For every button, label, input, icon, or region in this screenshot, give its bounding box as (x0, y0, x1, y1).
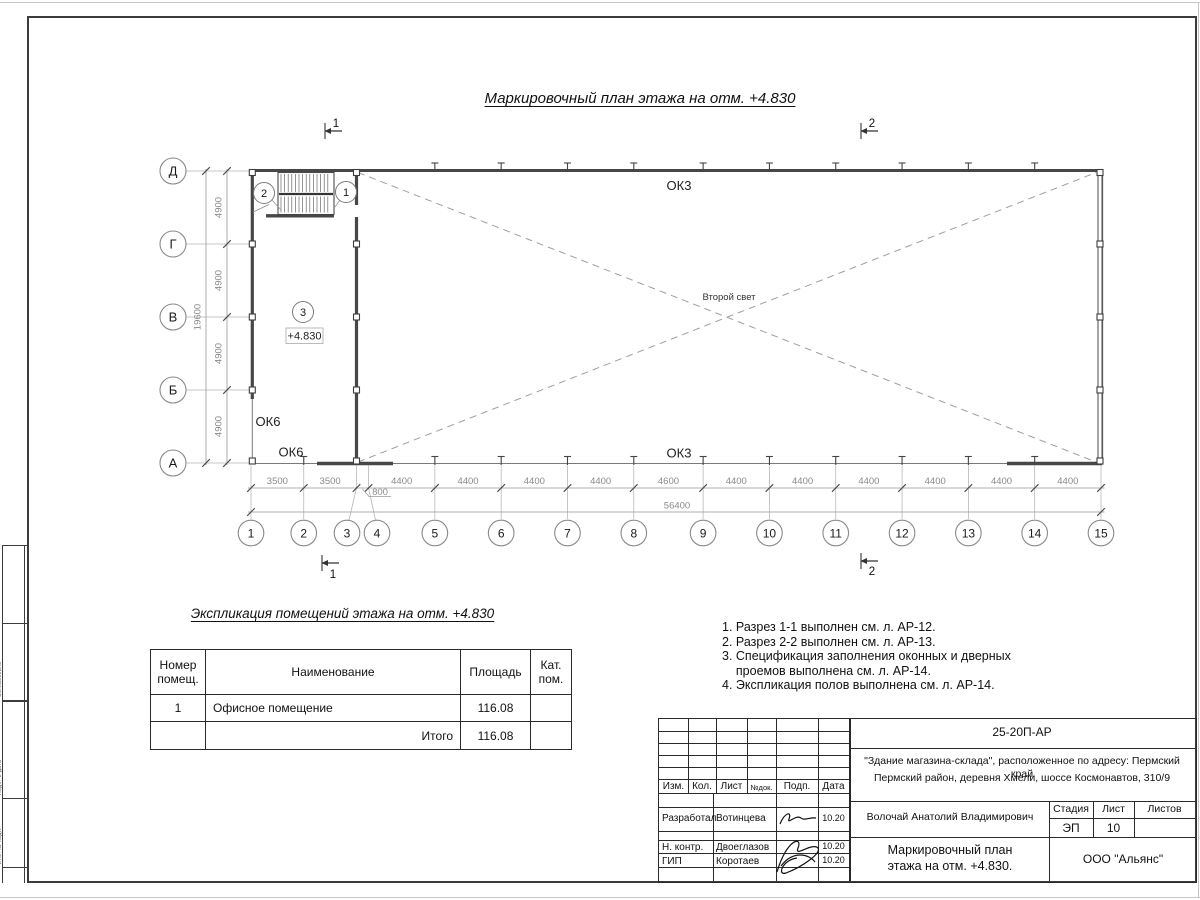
axis-column-label: 13 (962, 526, 976, 540)
dim-label: 4400 (858, 476, 879, 487)
axis-row-label: Д (169, 164, 178, 179)
drawing-title-line1: Маркировочный план (851, 843, 1049, 859)
tb-line (659, 755, 849, 756)
explication-header-row: Номер помещ. Наименование Площадь Кат. п… (151, 650, 572, 695)
axis-column-label: 1 (248, 526, 255, 540)
stamp-side-label: Инв. № подл. (0, 827, 3, 864)
dim-label: 4400 (726, 476, 747, 487)
window-label-ok6-bottom: ОК6 (279, 445, 304, 460)
tb-line (659, 743, 849, 744)
stair-tag: 1 (343, 187, 349, 199)
axis-column-label: 6 (498, 526, 505, 540)
sheet-label: Лист (1093, 803, 1134, 816)
doc-code: 25-20П-АР (849, 725, 1195, 740)
name-developer: Вотинцева (716, 813, 776, 826)
room-number: 1 (151, 695, 206, 722)
dim-label: 4400 (792, 476, 813, 487)
axis-column-label: 14 (1028, 526, 1042, 540)
dim-label: 4400 (457, 476, 478, 487)
axis-row-label: А (169, 456, 178, 471)
role-gip: ГИП (662, 856, 716, 869)
stamp-box-line (2, 798, 27, 799)
drawing-title-line2: этажа на отм. +4.830. (851, 859, 1049, 875)
signature-flourish (771, 832, 825, 880)
note-line: 3. Спецификация заполнения оконных и две… (722, 649, 1011, 664)
date-developer: 10.20 (818, 813, 849, 824)
axis-column-label: 10 (763, 526, 777, 540)
tb-line (659, 767, 849, 768)
floor-plan: 213+4.830ОК3ОК3ОК6ОК6Второй светДГВБА490… (0, 0, 1200, 600)
dim-label: 4900 (214, 197, 225, 218)
axis-column-label: 11 (830, 526, 843, 540)
explication-header-num: Номер помещ. (151, 650, 206, 695)
axis-column-label: 4 (374, 526, 381, 540)
stair-tag: 2 (261, 188, 267, 200)
axis-column-label: 2 (300, 526, 307, 540)
sheet-outer-edge-bottom (0, 897, 1200, 898)
axis-column-label: 7 (564, 526, 571, 540)
total-label: Итого (206, 722, 461, 750)
note-line: 1. Разрез 1-1 выполнен см. л. АР-12. (722, 620, 1011, 635)
axis-column-label: 5 (432, 526, 439, 540)
room-name: Офисное помещение (206, 695, 461, 722)
explication-total-row: Итого 116.08 (151, 722, 572, 750)
dim-label: 800 (372, 487, 388, 498)
stamp-side-label: Подп. и дата (0, 760, 3, 795)
second-light-label: Второй свет (702, 292, 756, 303)
note-line: 4. Экспликация полов выполнена см. л. АР… (722, 678, 1011, 693)
level-mark: +4.830 (288, 331, 322, 343)
dim-label: 4600 (658, 476, 679, 487)
empty-cell (531, 722, 572, 750)
tb-header-kol: Кол. (688, 781, 716, 794)
axis-row-label: Г (169, 237, 176, 252)
title-block: 25-20П-АР "Здание магазина-склада", расп… (658, 718, 1197, 883)
window-label-ok3-bottom: ОК3 (667, 446, 692, 461)
dim-total-label: 19600 (193, 304, 204, 330)
sheets-label: Листов (1134, 803, 1195, 816)
explication-header-area: Площадь (461, 650, 531, 695)
dim-label: 4400 (991, 476, 1012, 487)
tb-line (849, 837, 1195, 838)
stamp-box-line (2, 700, 27, 702)
role-developer: Разработал (662, 813, 716, 826)
dim-label: 4900 (214, 343, 225, 364)
tb-line (659, 807, 849, 808)
axis-column-label: 3 (344, 526, 351, 540)
tb-line (659, 731, 849, 732)
notes-list: 1. Разрез 1-1 выполнен см. л. АР-12. 2. … (722, 620, 1011, 693)
explication-table: Номер помещ. Наименование Площадь Кат. п… (150, 649, 572, 750)
explication-row: 1 Офисное помещение 116.08 (151, 695, 572, 722)
section-marker-label: 2 (869, 566, 875, 578)
company-name: ООО "Альянс" (1051, 852, 1195, 867)
dim-label: 4400 (590, 476, 611, 487)
dim-label: 3500 (267, 476, 288, 487)
name-gip: Коротаев (716, 856, 778, 869)
empty-cell (151, 722, 206, 750)
section-marker-label: 2 (869, 118, 875, 130)
room-tag: 3 (300, 307, 306, 319)
explication-title: Экспликация помещений этажа на отм. +4.8… (150, 606, 535, 621)
axis-column-label: 15 (1094, 526, 1108, 540)
dim-total-label: 56400 (664, 501, 690, 512)
stamp-side-label: Согласовано (0, 661, 3, 697)
axis-row-label: Б (169, 383, 178, 398)
tb-header-izm: Изм. (659, 781, 688, 794)
project-address-line2: Пермский район, деревня Хмели, шоссе Кос… (852, 772, 1192, 785)
tb-line (1049, 818, 1195, 819)
signature-developer (777, 809, 819, 831)
tb-line (849, 748, 1195, 749)
tb-line (659, 779, 849, 780)
dim-label: 4400 (925, 476, 946, 487)
role-ncontrol: Н. контр. (662, 842, 716, 855)
note-line: 2. Разрез 2-2 выполнен см. л. АР-13. (722, 635, 1011, 650)
drawing-sheet: { "sheet": { "main_title": "Маркировочны… (0, 0, 1200, 900)
axis-column-label: 9 (700, 526, 707, 540)
axis-column-label: 8 (630, 526, 637, 540)
explication-header-name: Наименование (206, 650, 461, 695)
dim-label: 4400 (1057, 476, 1078, 487)
dim-label: 3500 (320, 476, 341, 487)
window-label-ok3-top: ОК3 (667, 178, 692, 193)
stamp-box-line (2, 867, 27, 868)
dim-label: 4900 (214, 270, 225, 291)
total-area: 116.08 (461, 722, 531, 750)
section-marker-label: 1 (333, 118, 339, 130)
window-label-ok6-left: ОК6 (256, 414, 281, 429)
stage-value: ЭП (1049, 821, 1093, 836)
dim-label: 4400 (524, 476, 545, 487)
tb-header-ndok: №док. (747, 783, 776, 792)
stamp-box-line (2, 623, 27, 624)
axis-row-label: В (169, 310, 178, 325)
tb-header-podp: Подп. (776, 781, 818, 794)
chief-name: Волочай Анатолий Владимирович (851, 811, 1049, 824)
tb-header-data: Дата (818, 781, 849, 794)
stage-label: Стадия (1049, 803, 1093, 816)
sheet-value: 10 (1093, 821, 1134, 836)
section-marker-label: 1 (330, 569, 336, 581)
note-line: проемов выполнена см. л. АР-14. (722, 664, 1011, 679)
axis-column-label: 12 (895, 526, 909, 540)
room-category (531, 695, 572, 722)
room-area: 116.08 (461, 695, 531, 722)
explication-header-cat: Кат. пом. (531, 650, 572, 695)
dim-label: 4400 (391, 476, 412, 487)
tb-line (849, 801, 1195, 802)
name-ncontrol: Двоеглазов (716, 842, 778, 855)
tb-header-list: Лист (716, 781, 747, 794)
dim-label: 4900 (214, 416, 225, 437)
